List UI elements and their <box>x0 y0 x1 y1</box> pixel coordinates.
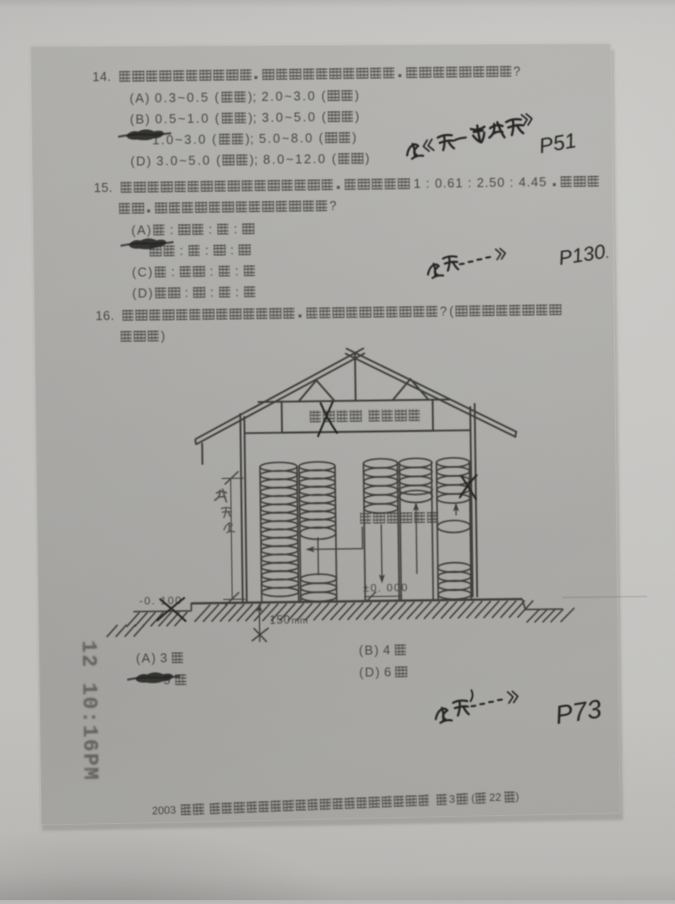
svg-text:P73: P73 <box>553 693 604 730</box>
svg-text:P51: P51 <box>537 129 578 158</box>
svg-text:P130.: P130. <box>557 241 610 270</box>
